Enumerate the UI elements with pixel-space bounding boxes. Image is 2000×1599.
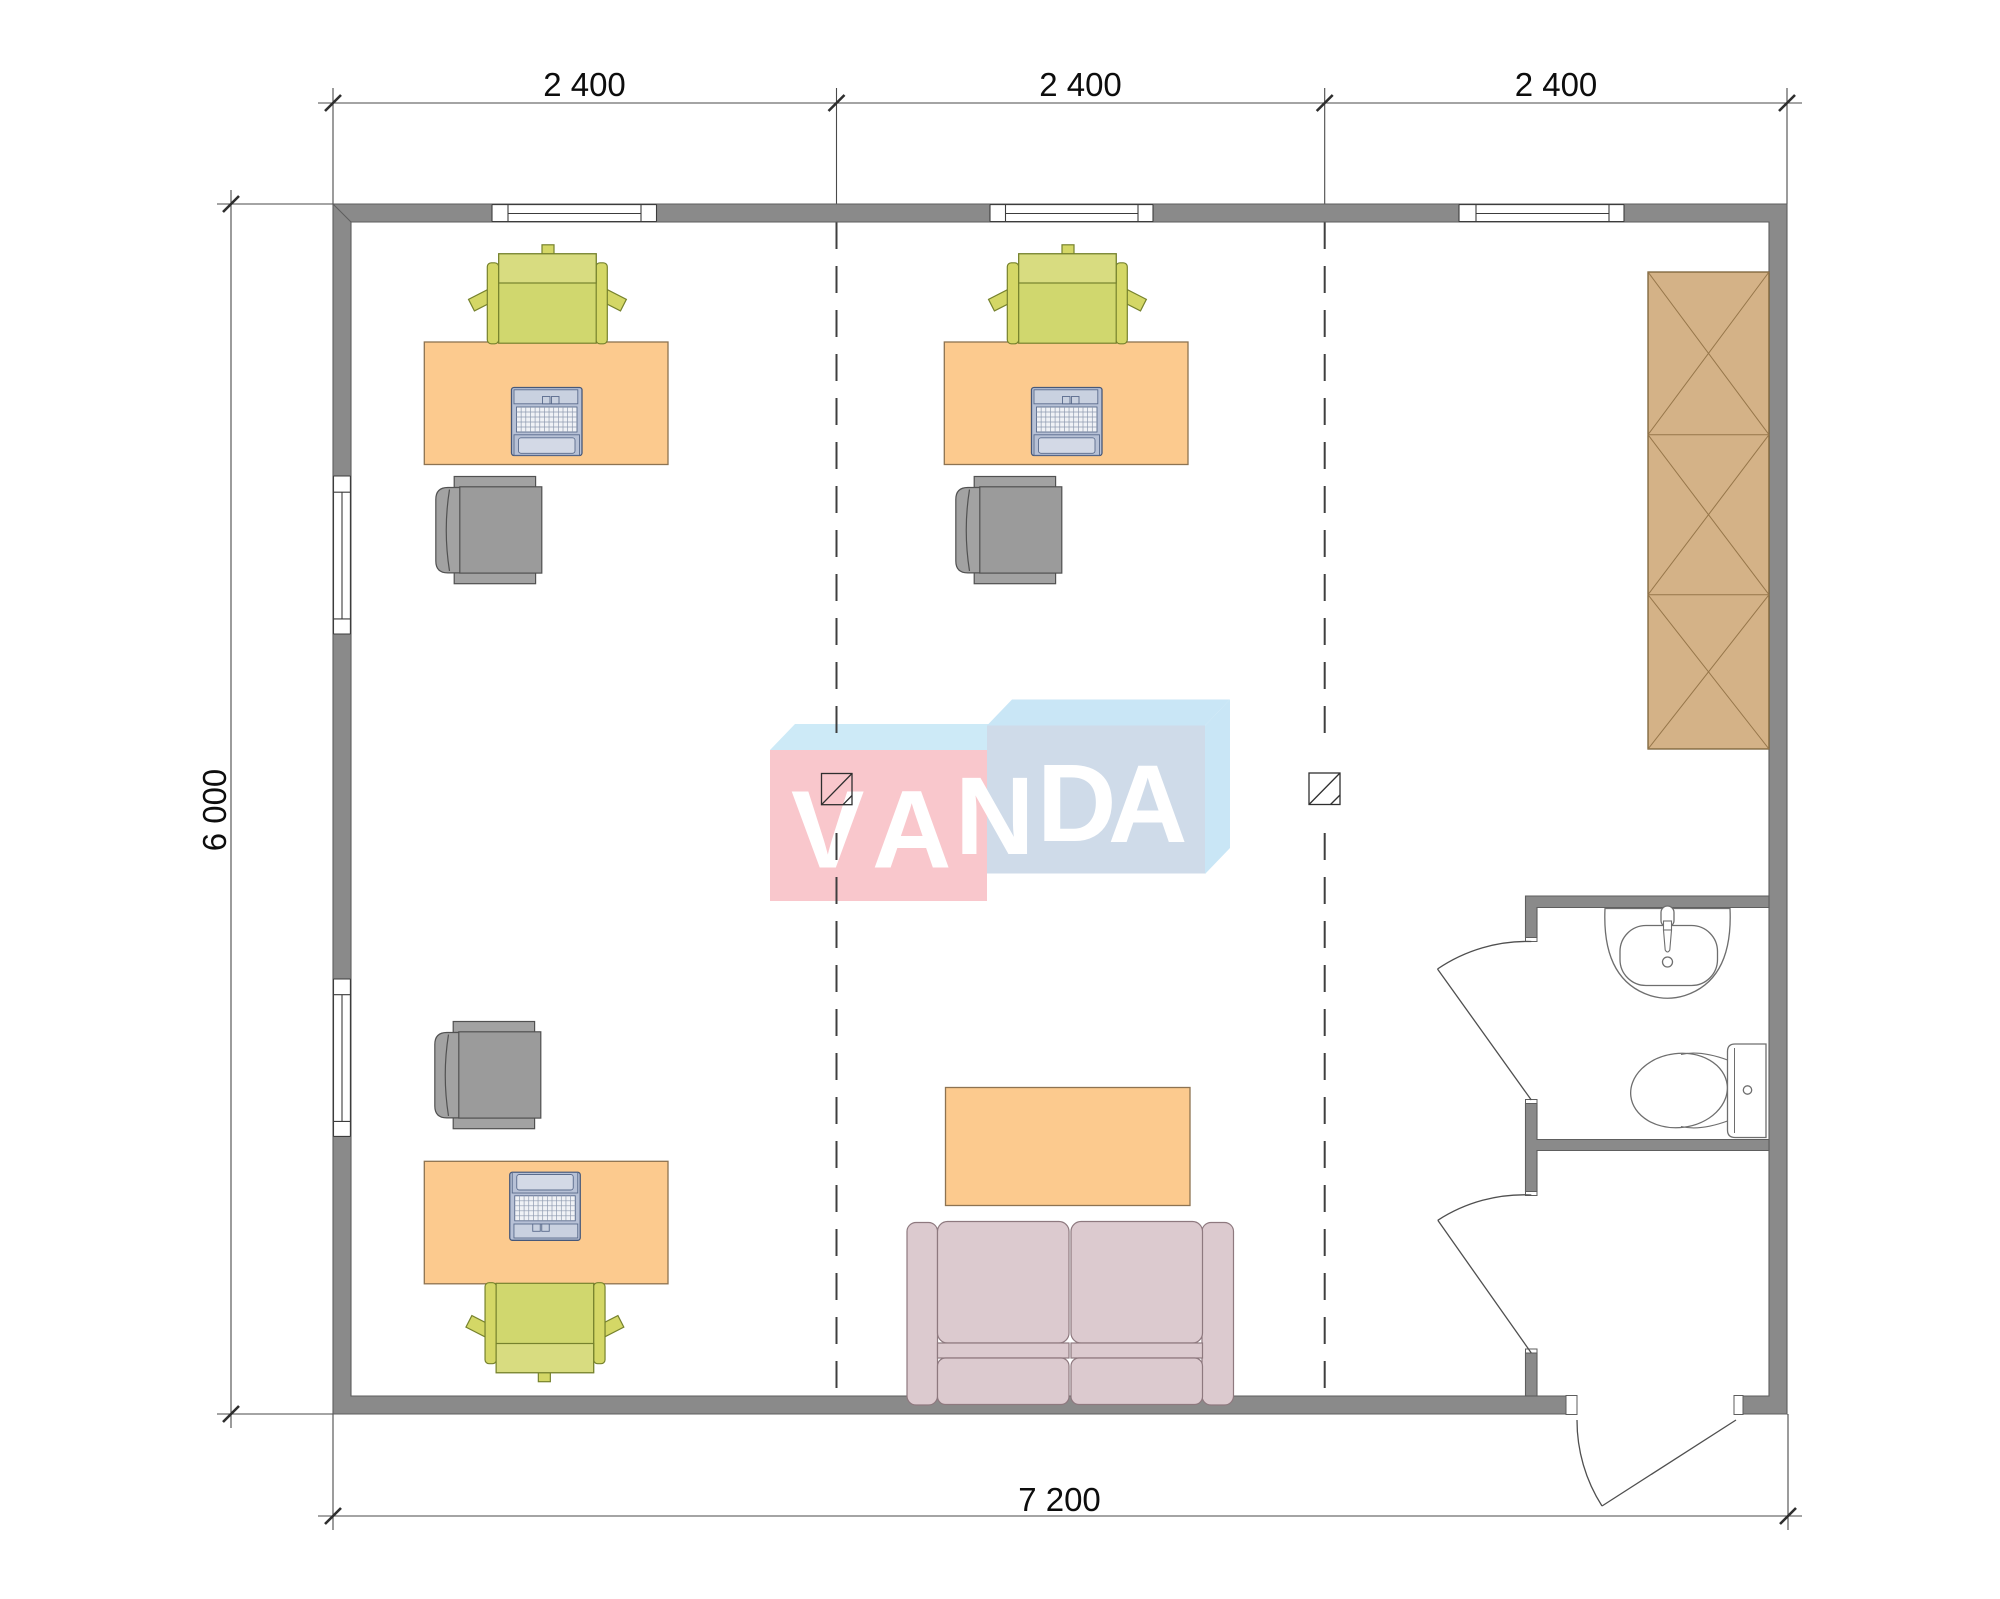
svg-text:2 400: 2 400 (1515, 66, 1598, 103)
svg-text:2 400: 2 400 (543, 66, 626, 103)
svg-text:D: D (1037, 742, 1116, 865)
svg-text:V: V (791, 769, 864, 892)
svg-text:A: A (1108, 743, 1187, 866)
svg-text:N: N (955, 755, 1034, 878)
svg-text:6 000: 6 000 (196, 769, 233, 852)
svg-text:7 200: 7 200 (1018, 1481, 1101, 1518)
svg-text:2 400: 2 400 (1039, 66, 1122, 103)
svg-text:A: A (872, 769, 951, 892)
